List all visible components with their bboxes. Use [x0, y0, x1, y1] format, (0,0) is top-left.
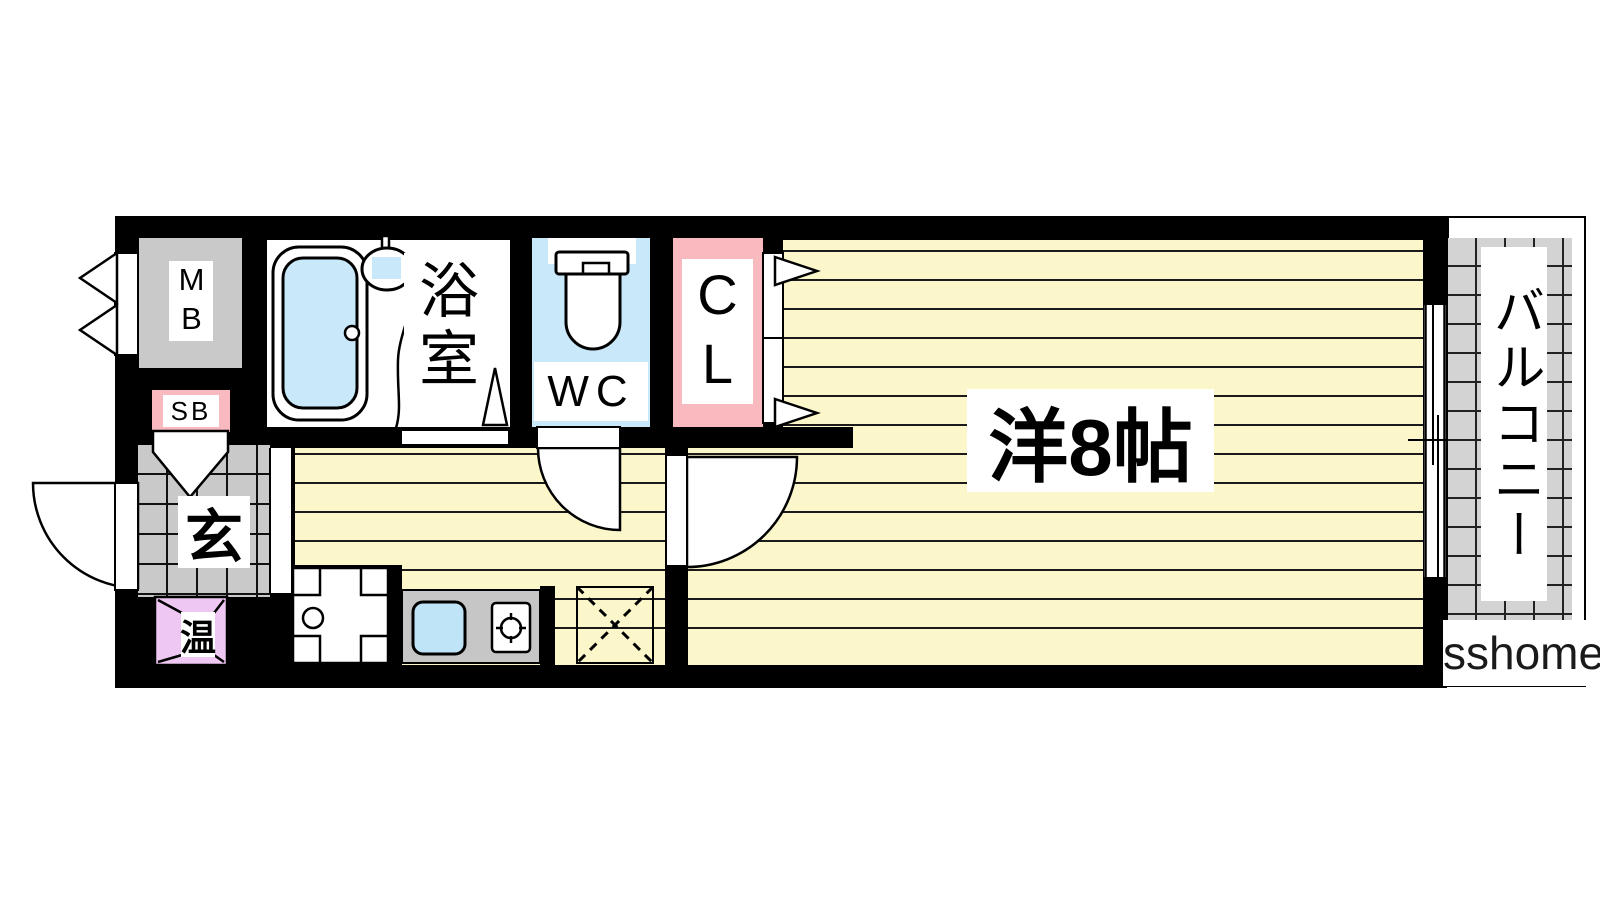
- wall-stub: [665, 427, 853, 448]
- entrance-step-edge: [269, 448, 293, 593]
- wall-patch: [288, 565, 402, 665]
- shoe-box-label: SB: [163, 395, 219, 427]
- balcony-label: バルコニー: [1481, 247, 1547, 601]
- meter-box-label: MB: [169, 261, 213, 341]
- entrance-label: 玄: [178, 496, 250, 568]
- wc-label: WC: [534, 362, 648, 421]
- watermark: sshome: [1443, 620, 1586, 686]
- water-heater-label: 温: [181, 612, 215, 657]
- main-room-label: 洋8帖: [967, 389, 1214, 492]
- main-room-floor-ext: [688, 448, 783, 665]
- closet-label: CL: [682, 259, 753, 404]
- floor-plan-canvas: MB SB 浴室 WC CL 洋8帖 玄 温 バルコニー sshome: [0, 0, 1600, 900]
- wall-patch: [540, 586, 555, 665]
- bathroom-label: 浴室: [404, 253, 484, 401]
